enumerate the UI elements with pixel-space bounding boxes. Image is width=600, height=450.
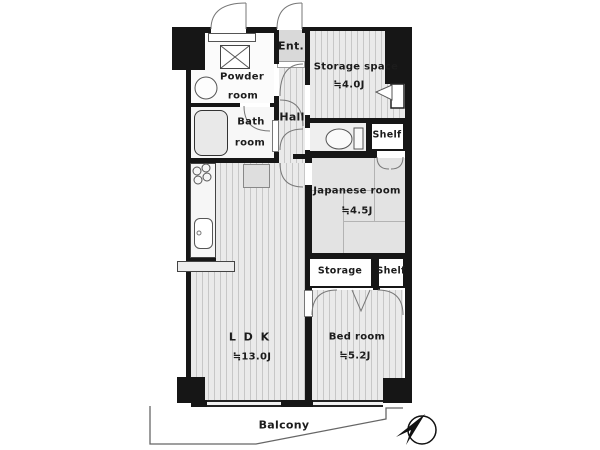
door-arc-hall-upper [280,64,303,96]
label-ldk: L D K [229,331,271,344]
label-bath-1: Bath [237,117,264,128]
door-arc-closet-right [378,290,403,315]
plan-annotations [0,0,600,450]
powder-sink [195,77,217,99]
label-bedroom-shelf: Shelf [377,266,406,277]
label-bath-2: room [235,138,265,149]
door-arc-top-left [211,3,246,29]
label-japanese: Japanese room [313,186,400,197]
label-wc-shelf: Shelf [373,130,402,141]
storage-space-door [376,84,404,108]
stove-burners [193,164,211,184]
label-hall: Hall [279,111,304,124]
closet-bifold-mark [352,290,370,311]
door-arc-closet-left [312,290,337,315]
door-arc-japanese [280,163,303,187]
label-powder-2: room [228,91,258,102]
label-ldk-size: ≒13.0J [233,352,272,363]
label-storage-space-size: ≒4.0J [333,80,364,91]
label-japanese-size: ≒4.5J [341,206,372,217]
label-entrance: Ent. [278,40,304,53]
door-arc-double-right [391,157,403,169]
kitchen-sink-drain [197,231,201,235]
washing-machine-x [221,46,249,68]
label-storage-space: Storage space [314,62,398,73]
label-bedroom: Bed room [329,332,386,343]
north-arrow-icon [396,414,436,445]
toilet [326,128,363,149]
label-powder-1: Powder [220,72,264,83]
floor-plan: Storage space ≒4.0J Ent. Powder room Bat… [0,0,600,450]
label-balcony: Balcony [259,419,310,432]
door-arc-entrance [277,3,302,29]
label-bedroom-size: ≒5.2J [339,351,370,362]
label-bedroom-storage: Storage [318,266,362,277]
door-arc-wc [280,129,303,150]
door-arc-double-left [377,157,389,169]
